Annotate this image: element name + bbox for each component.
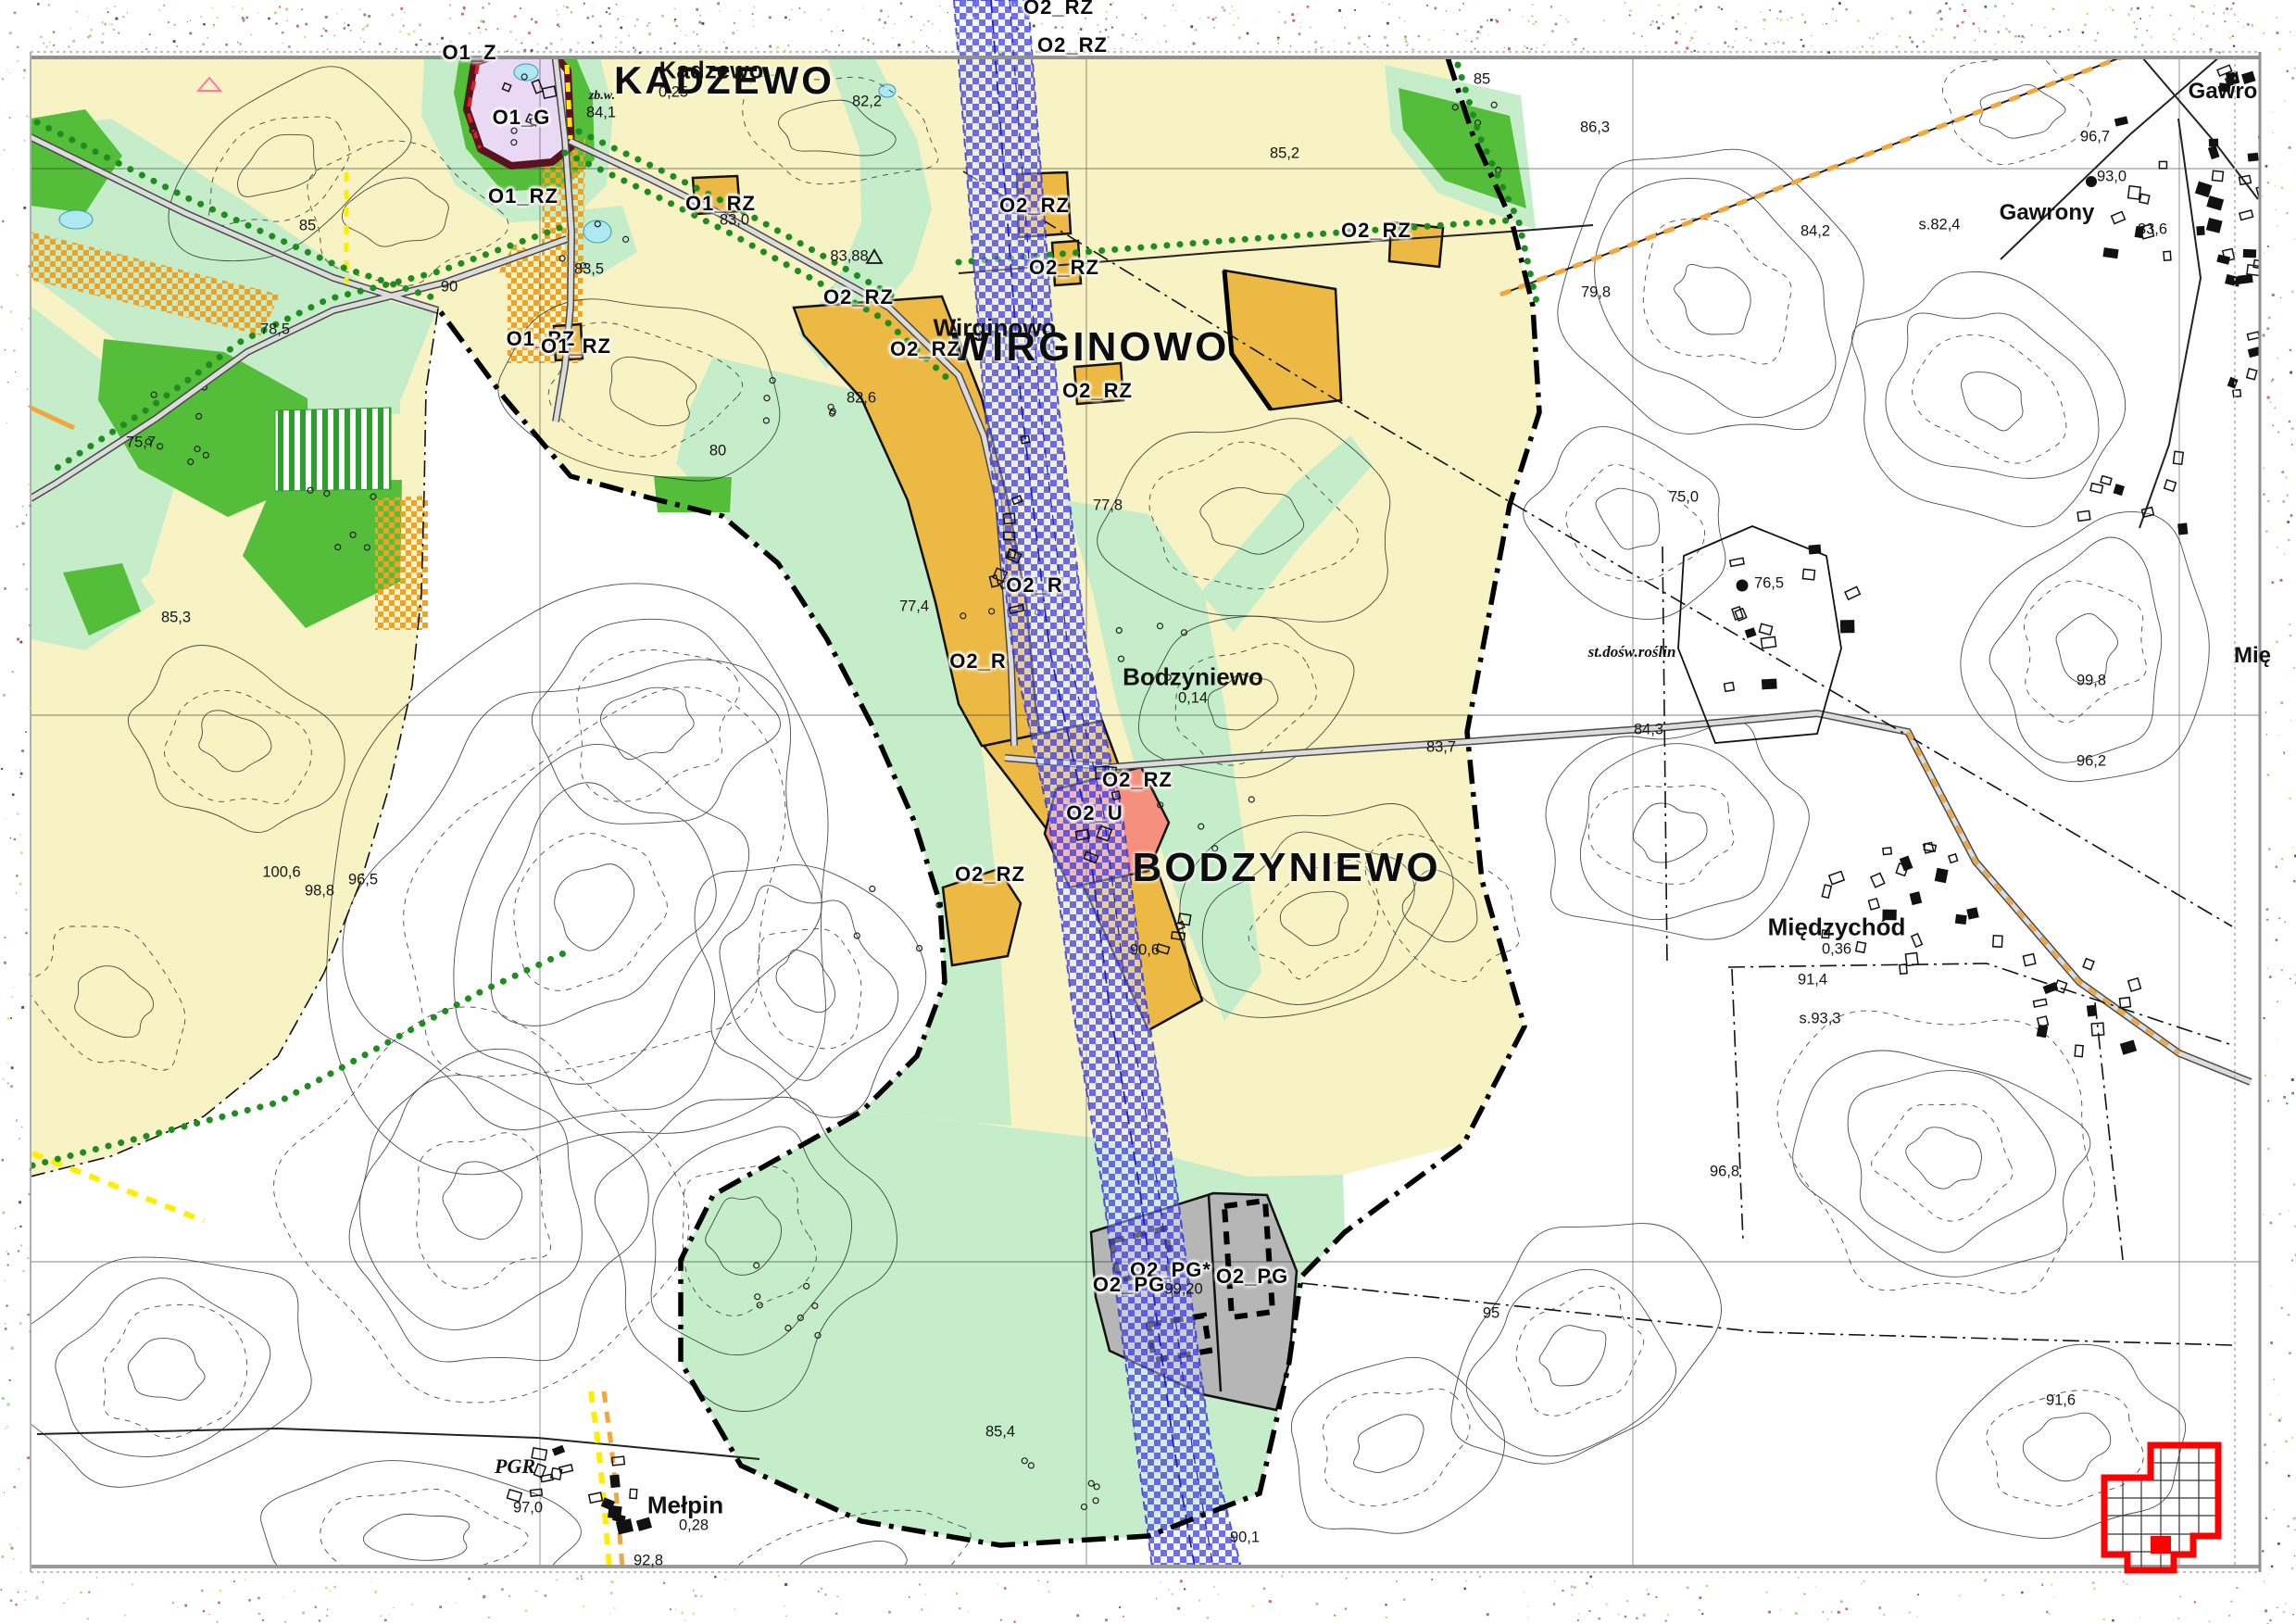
spot-height-dot [1737, 580, 1749, 592]
index-map-current-sheet [2151, 1536, 2171, 1554]
map-canvas [0, 0, 2296, 1624]
plan-map-screenshot: KADZEWOWIRGINOWOBODZYNIEWOO1_ZO1_GO1_RZO… [0, 0, 2296, 1624]
spot-height-dot [2086, 176, 2097, 187]
forest-plantation-striped [275, 408, 391, 491]
